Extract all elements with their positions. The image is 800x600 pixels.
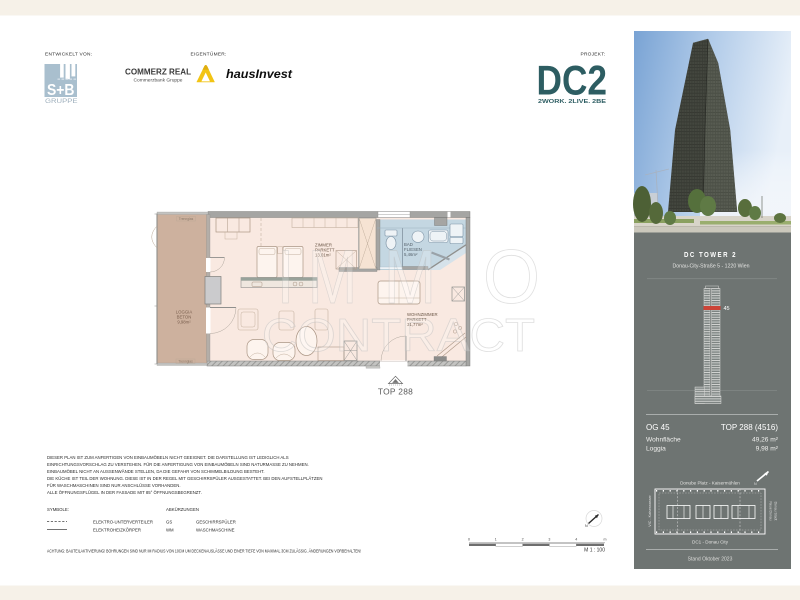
svg-text:GRUPPE: GRUPPE bbox=[45, 98, 78, 105]
svg-text:9,98m²: 9,98m² bbox=[177, 320, 191, 325]
svg-text:Donube Platz - Kaisermühlen: Donube Platz - Kaisermühlen bbox=[680, 481, 740, 486]
svg-text:GS: GS bbox=[166, 520, 172, 525]
svg-text:S+B: S+B bbox=[47, 82, 75, 99]
svg-text:M: M bbox=[384, 235, 436, 320]
svg-text:Wohnfläche: Wohnfläche bbox=[646, 437, 681, 444]
svg-text:DC1 - Donau City: DC1 - Donau City bbox=[692, 540, 729, 545]
svg-text:ELEKTROHEIZKÖRPER: ELEKTROHEIZKÖRPER bbox=[93, 528, 141, 533]
svg-text:Stand Oktober 2023: Stand Oktober 2023 bbox=[688, 557, 733, 563]
svg-text:2WORK. 2LIVE. 2BE: 2WORK. 2LIVE. 2BE bbox=[538, 99, 606, 105]
svg-text:SYMBOLE:: SYMBOLE: bbox=[47, 507, 69, 512]
svg-text:WM: WM bbox=[166, 528, 174, 533]
svg-text:N: N bbox=[754, 482, 757, 486]
svg-text:OG 45: OG 45 bbox=[646, 423, 670, 432]
svg-text:ENTWICKELT VON:: ENTWICKELT VON: bbox=[45, 52, 92, 58]
svg-text:TOP 288: TOP 288 bbox=[378, 387, 413, 397]
svg-text:ELEKTRO-UNTERVERTEILER: ELEKTRO-UNTERVERTEILER bbox=[93, 520, 153, 525]
svg-text:N: N bbox=[585, 524, 588, 528]
svg-text:ALLE ÖFFNUNGSFLÜGEL IN DER FAS: ALLE ÖFFNUNGSFLÜGEL IN DER FASSADE MIT 8… bbox=[47, 490, 202, 495]
svg-text:Donau Stadt: Donau Stadt bbox=[774, 502, 778, 521]
svg-text:COMMERZ REAL: COMMERZ REAL bbox=[125, 67, 191, 77]
svg-text:49,26 m²: 49,26 m² bbox=[752, 437, 779, 444]
svg-text:EINBAUMÖBEL NICHT AN AUSSENWÄN: EINBAUMÖBEL NICHT AN AUSSENWÄNDE STELLEN… bbox=[47, 469, 265, 474]
svg-text:DIE KÜCHE IST TEIL DER WOHNUNG: DIE KÜCHE IST TEIL DER WOHNUNG. DIESE IS… bbox=[47, 476, 322, 481]
svg-text:WASCHMASCHINE: WASCHMASCHINE bbox=[196, 528, 235, 533]
svg-text:0: 0 bbox=[468, 538, 470, 542]
svg-text:EINRICHTUNGSVORSCHLAG ZU VERST: EINRICHTUNGSVORSCHLAG ZU VERSTEHEN. FÜR … bbox=[47, 462, 309, 467]
svg-text:FÜR WASCHMASCHINEN SIND NUR AN: FÜR WASCHMASCHINEN SIND NUR ANSCHLÜSSE V… bbox=[47, 483, 181, 488]
svg-text:2: 2 bbox=[522, 538, 524, 542]
svg-text:TOP 288 (4516): TOP 288 (4516) bbox=[721, 423, 778, 432]
svg-text:45: 45 bbox=[724, 306, 730, 312]
svg-text:I: I bbox=[277, 235, 294, 320]
svg-text:Trennglas: Trennglas bbox=[178, 360, 193, 364]
svg-text:4: 4 bbox=[575, 538, 577, 542]
svg-text:Donau-City-Straße 5 - 1220 Wie: Donau-City-Straße 5 - 1220 Wien bbox=[673, 263, 750, 269]
svg-text:Neue Donau: Neue Donau bbox=[769, 501, 773, 520]
svg-text:9,98 m²: 9,98 m² bbox=[756, 446, 779, 453]
svg-text:1: 1 bbox=[495, 538, 497, 542]
svg-text:Loggia: Loggia bbox=[646, 446, 666, 453]
svg-text:DC TOWER 2: DC TOWER 2 bbox=[684, 250, 737, 259]
svg-text:ACHTUNG: BAUTEILAKTIVIERUNG! B: ACHTUNG: BAUTEILAKTIVIERUNG! BOHRUNGEN S… bbox=[47, 549, 361, 554]
svg-text:VIC - Kaiserwasser: VIC - Kaiserwasser bbox=[648, 494, 652, 526]
svg-text:Trennglas: Trennglas bbox=[179, 217, 194, 221]
svg-text:M 1 : 100: M 1 : 100 bbox=[584, 548, 605, 554]
svg-text:DC2: DC2 bbox=[537, 57, 608, 104]
svg-text:Commerzbank Gruppe: Commerzbank Gruppe bbox=[134, 78, 183, 84]
svg-text:M: M bbox=[308, 235, 357, 320]
svg-text:CONTRACT: CONTRACT bbox=[262, 309, 535, 361]
svg-text:GESCHIRRSPÜLER: GESCHIRRSPÜLER bbox=[196, 520, 236, 525]
svg-text:EIGENTÜMER:: EIGENTÜMER: bbox=[191, 51, 227, 58]
svg-text:O: O bbox=[483, 235, 540, 320]
svg-text:m: m bbox=[604, 538, 607, 542]
svg-text:hausInvest: hausInvest bbox=[226, 67, 293, 81]
svg-text:ABKÜRZUNGEN: ABKÜRZUNGEN bbox=[166, 507, 199, 512]
svg-text:3: 3 bbox=[548, 538, 550, 542]
svg-text:DIESER PLAN IST ZUM ANFERTIGEN: DIESER PLAN IST ZUM ANFERTIGEN VON EINBA… bbox=[47, 455, 289, 460]
